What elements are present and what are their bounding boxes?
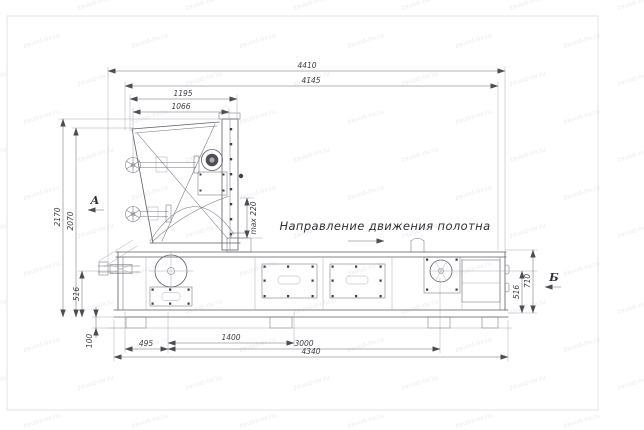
watermark-text: zavod-nv.ru [0, 373, 7, 392]
watermark-text: zavod-nv.ru [292, 373, 331, 392]
section-a-label: А [90, 194, 100, 207]
watermark-text: zavod-nv.ru [616, 297, 644, 316]
watermark-text: zavod-nv.ru [616, 221, 644, 240]
watermark-text: zavod-nv.ru [238, 107, 277, 126]
watermark-text: zavod-nv.ru [22, 31, 61, 50]
drawing-sheet: zavod-nv.ruzavod-nv.ruzavod-nv.ruzavod-n… [0, 0, 644, 430]
watermark-text: zavod-nv.ru [616, 69, 644, 88]
watermark-text: zavod-nv.ru [22, 411, 61, 430]
technical-drawing: zavod-nv.ruzavod-nv.ruzavod-nv.ruzavod-n… [0, 0, 644, 430]
watermark-text: zavod-nv.ru [0, 297, 7, 316]
watermark-text: zavod-nv.ru [400, 297, 439, 316]
watermark-text: zavod-nv.ru [238, 183, 277, 202]
access-panel-a [262, 264, 317, 298]
watermark-text: zavod-nv.ru [346, 107, 385, 126]
dim-right-lower: 516 [512, 285, 521, 300]
watermark-text: zavod-nv.ru [400, 145, 439, 164]
watermark-text: zavod-nv.ru [22, 183, 61, 202]
watermark-text: zavod-nv.ru [454, 411, 493, 430]
watermark-text: zavod-nv.ru [346, 335, 385, 354]
watermark-text: zavod-nv.ru [76, 0, 115, 12]
watermark-text: zavod-nv.ru [616, 373, 644, 392]
watermark-text: zavod-nv.ru [22, 259, 61, 278]
watermark-text: zavod-nv.ru [562, 183, 601, 202]
watermark-text: zavod-nv.ru [562, 31, 601, 50]
conveyor-body [98, 238, 512, 328]
watermark-text: zavod-nv.ru [0, 145, 7, 164]
direction-label: Направление движения полотна [279, 219, 490, 233]
watermark-text: zavod-nv.ru [562, 259, 601, 278]
dim-right-upper: 710 [523, 274, 532, 289]
watermark-text: zavod-nv.ru [76, 373, 115, 392]
watermark-text: zavod-nv.ru [400, 373, 439, 392]
watermark-text: zavod-nv.ru [346, 259, 385, 278]
motor [198, 150, 227, 196]
watermark-text: zavod-nv.ru [562, 411, 601, 430]
drive-drum [424, 257, 460, 293]
hopper-assembly [99, 113, 251, 267]
watermark-text: zavod-nv.ru [454, 335, 493, 354]
dim-top-frame: 4145 [301, 76, 320, 85]
watermark-text: zavod-nv.ru [0, 0, 7, 12]
watermark-text: zavod-nv.ru [292, 0, 331, 12]
watermark-text: zavod-nv.ru [184, 373, 223, 392]
watermark-text: zavod-nv.ru [76, 69, 115, 88]
dim-left-feet: 100 [85, 334, 94, 349]
watermark-text: zavod-nv.ru [454, 31, 493, 50]
watermark-text: zavod-nv.ru [400, 69, 439, 88]
watermark-text: zavod-nv.ru [130, 107, 169, 126]
watermark-text: zavod-nv.ru [508, 69, 547, 88]
watermark-text: zavod-nv.ru [238, 335, 277, 354]
dim-max-gap: max 220 [249, 201, 258, 234]
watermark-text: zavod-nv.ru [130, 259, 169, 278]
watermark-text: zavod-nv.ru [292, 145, 331, 164]
watermark-text: zavod-nv.ru [508, 221, 547, 240]
watermark-text: zavod-nv.ru [184, 297, 223, 316]
dim-bottom-mid: 1400 [221, 333, 240, 342]
watermark-text: zavod-nv.ru [346, 31, 385, 50]
watermark-text: zavod-nv.ru [0, 69, 7, 88]
watermark-layer: zavod-nv.ruzavod-nv.ruzavod-nv.ruzavod-n… [0, 0, 644, 430]
top-cap [408, 238, 427, 252]
dim-left-overall: 2170 [53, 207, 62, 226]
watermark-text: zavod-nv.ru [454, 107, 493, 126]
watermark-text: zavod-nv.ru [454, 183, 493, 202]
watermark-text: zavod-nv.ru [238, 31, 277, 50]
watermark-text: zavod-nv.ru [508, 145, 547, 164]
watermark-text: zavod-nv.ru [22, 335, 61, 354]
watermark-text: zavod-nv.ru [562, 107, 601, 126]
watermark-text: zavod-nv.ru [76, 145, 115, 164]
handwheel-lower-icon [126, 207, 141, 222]
access-panel-left [150, 287, 192, 306]
watermark-text: zavod-nv.ru [292, 297, 331, 316]
watermark-text: zavod-nv.ru [130, 31, 169, 50]
watermark-text: zavod-nv.ru [346, 183, 385, 202]
watermark-text: zavod-nv.ru [76, 221, 115, 240]
watermark-text: zavod-nv.ru [562, 335, 601, 354]
dim-bottom-base: 4340 [301, 347, 320, 356]
dim-top-inner: 1066 [171, 102, 190, 111]
machine-feet [126, 317, 498, 328]
watermark-text: zavod-nv.ru [0, 221, 7, 240]
dim-top-overall: 4410 [297, 61, 316, 70]
watermark-text: zavod-nv.ru [130, 183, 169, 202]
watermark-text: zavod-nv.ru [616, 0, 644, 12]
dim-left-inner: 2070 [66, 211, 75, 230]
watermark-text: zavod-nv.ru [616, 145, 644, 164]
watermark-text: zavod-nv.ru [238, 259, 277, 278]
watermark-text: zavod-nv.ru [400, 0, 439, 12]
watermark-text: zavod-nv.ru [130, 411, 169, 430]
dim-bottom-offset: 495 [139, 339, 154, 348]
watermark-text: zavod-nv.ru [22, 107, 61, 126]
watermark-text: zavod-nv.ru [238, 411, 277, 430]
dim-top-hopper: 1195 [173, 89, 192, 98]
watermark-text: zavod-nv.ru [346, 411, 385, 430]
watermark-text: zavod-nv.ru [508, 373, 547, 392]
watermark-text: zavod-nv.ru [184, 69, 223, 88]
watermark-text: zavod-nv.ru [508, 0, 547, 12]
dim-left-lower: 516 [72, 287, 81, 302]
section-b-label: Б [548, 271, 559, 284]
watermark-text: zavod-nv.ru [184, 0, 223, 12]
watermark-text: zavod-nv.ru [184, 221, 223, 240]
